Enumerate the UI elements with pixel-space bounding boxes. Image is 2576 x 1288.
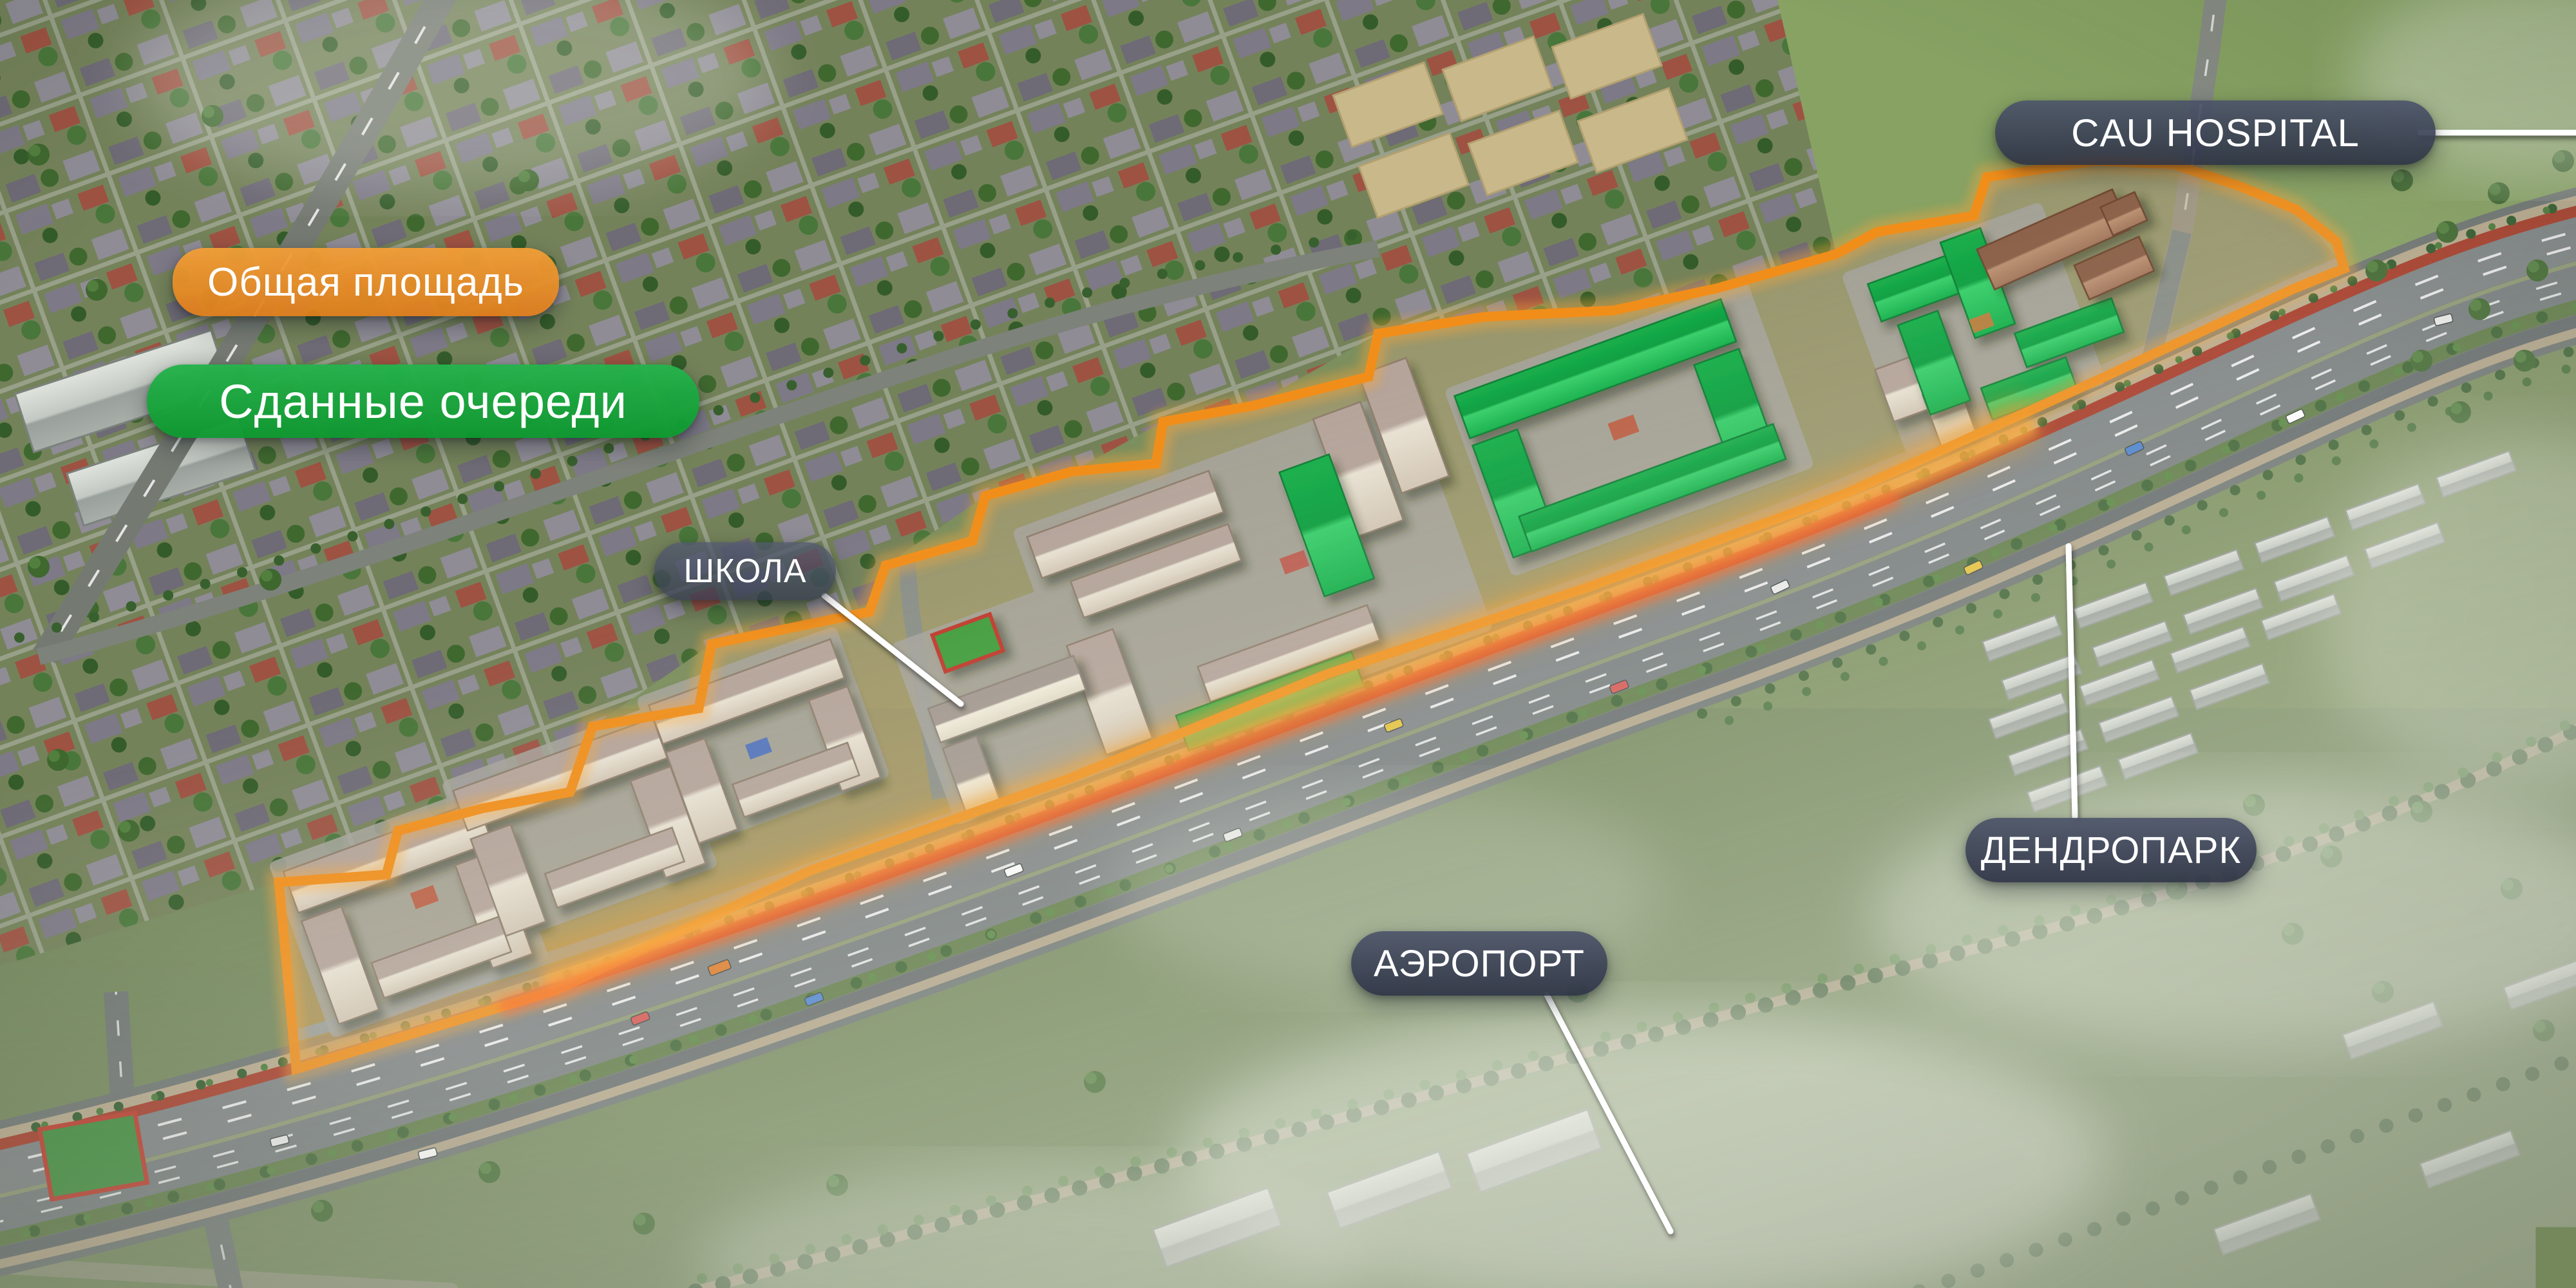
legend-total-area-label: Общая площадь xyxy=(207,260,524,305)
dendropark-label: ДЕНДРОПАРК xyxy=(1981,829,2242,872)
fog xyxy=(0,0,2576,1288)
hospital-location-badge[interactable]: CAU HOSPITAL xyxy=(1995,100,2436,165)
dendropark-location-badge[interactable]: ДЕНДРОПАРК xyxy=(1965,818,2257,882)
map-render xyxy=(0,0,2576,1288)
airport-location-badge[interactable]: АЭРОПОРТ xyxy=(1351,931,1607,996)
legend-completed-phases-label: Сданные очереди xyxy=(219,374,627,429)
school-label: ШКОЛА xyxy=(683,552,806,591)
airport-label: АЭРОПОРТ xyxy=(1374,942,1585,985)
legend-completed-phases-badge[interactable]: Сданные очереди xyxy=(147,365,699,438)
legend-total-area-badge[interactable]: Общая площадь xyxy=(173,248,559,316)
hospital-label: CAU HOSPITAL xyxy=(2071,111,2360,155)
school-location-badge[interactable]: ШКОЛА xyxy=(654,542,836,600)
masterplan-scene: Общая площадь Сданные очереди ШКОЛА CAU … xyxy=(0,0,2576,1288)
